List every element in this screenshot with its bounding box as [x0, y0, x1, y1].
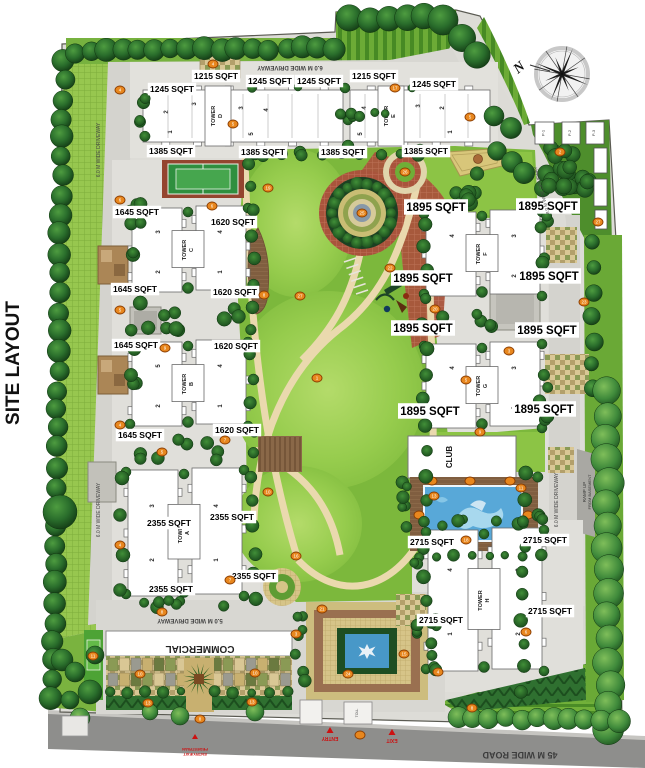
svg-text:1895 SQFT: 1895 SQFT — [514, 404, 573, 416]
svg-text:21: 21 — [319, 607, 325, 612]
svg-text:18: 18 — [463, 538, 469, 543]
svg-text:10: 10 — [265, 490, 271, 495]
svg-text:10: 10 — [252, 671, 258, 676]
svg-text:1245 SQFT: 1245 SQFT — [297, 76, 342, 86]
svg-text:E: E — [391, 114, 397, 118]
svg-text:1895 SQFT: 1895 SQFT — [393, 273, 452, 285]
svg-text:C: C — [189, 248, 195, 252]
svg-text:1895 SQFT: 1895 SQFT — [393, 323, 452, 335]
svg-text:TOLL: TOLL — [355, 709, 359, 718]
svg-text:1245 SQFT: 1245 SQFT — [150, 84, 195, 94]
svg-text:1645 SQFT: 1645 SQFT — [118, 430, 163, 440]
svg-text:1895 SQFT: 1895 SQFT — [517, 325, 576, 337]
svg-text:2715 SQFT: 2715 SQFT — [419, 615, 464, 625]
svg-text:SITE LAYOUT: SITE LAYOUT — [3, 301, 24, 425]
svg-text:D: D — [218, 114, 224, 118]
svg-text:2715 SQFT: 2715 SQFT — [528, 606, 573, 616]
svg-text:11: 11 — [519, 486, 524, 491]
svg-text:2355 SQFT: 2355 SQFT — [147, 518, 192, 528]
svg-text:2355 SQFT: 2355 SQFT — [210, 512, 255, 522]
svg-text:1620 SQFT: 1620 SQFT — [215, 425, 260, 435]
svg-text:PEDESTRIAN: PEDESTRIAN — [182, 747, 208, 752]
svg-text:25: 25 — [359, 211, 365, 216]
svg-text:A: A — [185, 531, 191, 535]
svg-text:TOWER: TOWER — [211, 106, 217, 126]
svg-text:1215 SQFT: 1215 SQFT — [194, 71, 239, 81]
svg-text:22: 22 — [387, 266, 393, 271]
svg-text:P-2: P-2 — [567, 129, 572, 136]
svg-text:1215 SQFT: 1215 SQFT — [352, 71, 397, 81]
svg-text:2715 SQFT: 2715 SQFT — [523, 535, 568, 545]
svg-text:1895 SQFT: 1895 SQFT — [400, 406, 459, 418]
svg-text:45 M WIDE ROAD: 45 M WIDE ROAD — [482, 750, 558, 760]
svg-text:23: 23 — [581, 300, 587, 305]
svg-text:TOWER: TOWER — [182, 240, 188, 260]
svg-text:TOWER: TOWER — [478, 590, 484, 610]
svg-text:6.0 M WIDE DRIVEWAY: 6.0 M WIDE DRIVEWAY — [257, 64, 322, 70]
svg-text:13: 13 — [145, 701, 151, 706]
svg-text:TOWER: TOWER — [182, 374, 188, 394]
svg-text:H: H — [485, 598, 491, 602]
svg-text:1385 SQFT: 1385 SQFT — [149, 146, 194, 156]
svg-text:1245 SQFT: 1245 SQFT — [412, 79, 457, 89]
svg-text:1895 SQFT: 1895 SQFT — [406, 202, 465, 214]
svg-text:6.0 M WIDE DRIVEWAY: 6.0 M WIDE DRIVEWAY — [96, 482, 102, 537]
svg-text:1620 SQFT: 1620 SQFT — [213, 287, 258, 297]
svg-text:1245 SQFT: 1245 SQFT — [248, 76, 293, 86]
svg-text:1385 SQFT: 1385 SQFT — [321, 147, 366, 157]
svg-text:19: 19 — [265, 186, 271, 191]
svg-text:13: 13 — [249, 700, 255, 705]
svg-text:26: 26 — [402, 170, 408, 175]
svg-text:G: G — [483, 384, 489, 388]
svg-text:1385 SQFT: 1385 SQFT — [404, 146, 449, 156]
svg-text:1620 SQFT: 1620 SQFT — [211, 217, 256, 227]
svg-text:6.0 M WIDE DRIVEWAY: 6.0 M WIDE DRIVEWAY — [96, 122, 102, 177]
svg-text:24: 24 — [345, 672, 351, 677]
svg-text:TOWER: TOWER — [476, 376, 482, 396]
svg-text:20: 20 — [432, 307, 438, 312]
svg-text:17: 17 — [392, 86, 398, 91]
svg-text:CLUB: CLUB — [445, 446, 454, 468]
svg-text:ENTRY: ENTRY — [321, 735, 338, 741]
svg-text:1645 SQFT: 1645 SQFT — [115, 207, 160, 217]
svg-text:15: 15 — [401, 652, 407, 657]
svg-text:2715 SQFT: 2715 SQFT — [410, 537, 455, 547]
svg-text:P-1: P-1 — [541, 129, 546, 136]
svg-text:1620 SQFT: 1620 SQFT — [214, 341, 259, 351]
svg-text:2355 SQFT: 2355 SQFT — [232, 571, 277, 581]
svg-text:10: 10 — [137, 672, 143, 677]
svg-text:6.0 M WIDE DRIVEWAY: 6.0 M WIDE DRIVEWAY — [554, 472, 560, 527]
svg-text:16: 16 — [293, 554, 299, 559]
svg-text:B: B — [189, 382, 195, 386]
svg-text:2355 SQFT: 2355 SQFT — [149, 584, 194, 594]
svg-text:1895 SQFT: 1895 SQFT — [519, 271, 578, 283]
svg-text:1645 SQFT: 1645 SQFT — [113, 284, 158, 294]
svg-text:P-3: P-3 — [591, 129, 596, 136]
svg-text:COMMERCIAL: COMMERCIAL — [166, 643, 235, 654]
svg-text:5.0 M WIDE DRIVEWAY: 5.0 M WIDE DRIVEWAY — [157, 617, 222, 623]
svg-text:27: 27 — [595, 220, 601, 225]
svg-text:ENTRY/EXIT: ENTRY/EXIT — [183, 752, 207, 757]
svg-text:27: 27 — [297, 294, 303, 299]
svg-text:1385 SQFT: 1385 SQFT — [241, 147, 286, 157]
svg-text:TOWER: TOWER — [476, 244, 482, 264]
svg-text:11: 11 — [91, 654, 96, 659]
svg-text:FROM BASEMENT: FROM BASEMENT — [587, 474, 592, 509]
svg-text:1645 SQFT: 1645 SQFT — [114, 340, 159, 350]
svg-text:EXIT: EXIT — [386, 737, 397, 743]
svg-text:13: 13 — [431, 494, 437, 499]
